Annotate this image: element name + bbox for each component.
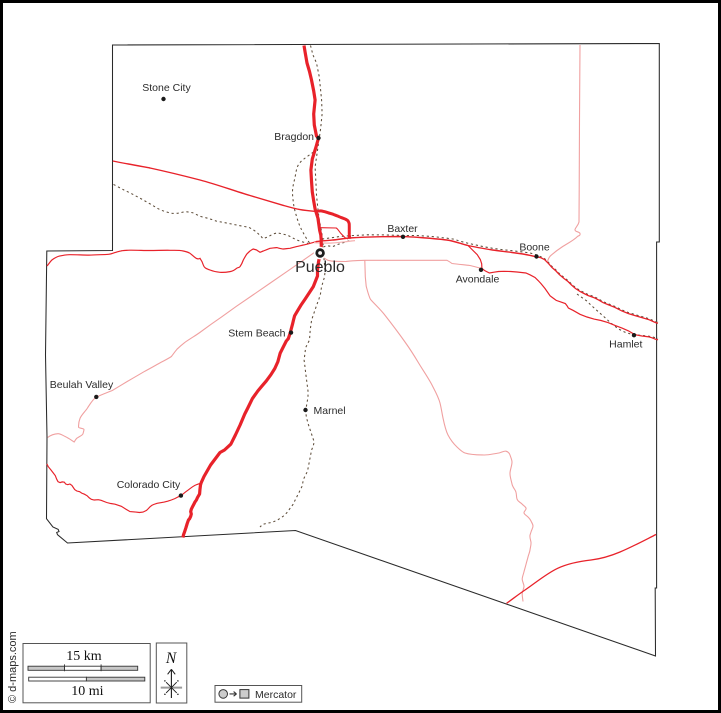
svg-text:Beulah Valley: Beulah Valley (50, 379, 114, 391)
svg-text:Marnel: Marnel (314, 405, 346, 417)
svg-text:10 mi: 10 mi (71, 684, 103, 699)
svg-text:Mercator: Mercator (255, 689, 297, 701)
svg-text:Pueblo: Pueblo (295, 259, 345, 276)
svg-text:Avondale: Avondale (456, 273, 500, 285)
svg-text:Boone: Boone (519, 242, 550, 254)
svg-text:Stem Beach: Stem Beach (228, 328, 285, 340)
svg-text:Hamlet: Hamlet (609, 339, 642, 351)
svg-text:Colorado City: Colorado City (117, 479, 181, 491)
svg-text:© d-maps.com: © d-maps.com (7, 631, 19, 703)
svg-text:15 km: 15 km (66, 649, 102, 664)
svg-text:N: N (165, 650, 178, 667)
svg-text:Stone City: Stone City (142, 82, 191, 94)
svg-text:Baxter: Baxter (387, 223, 418, 235)
svg-text:Bragdon: Bragdon (274, 131, 314, 143)
